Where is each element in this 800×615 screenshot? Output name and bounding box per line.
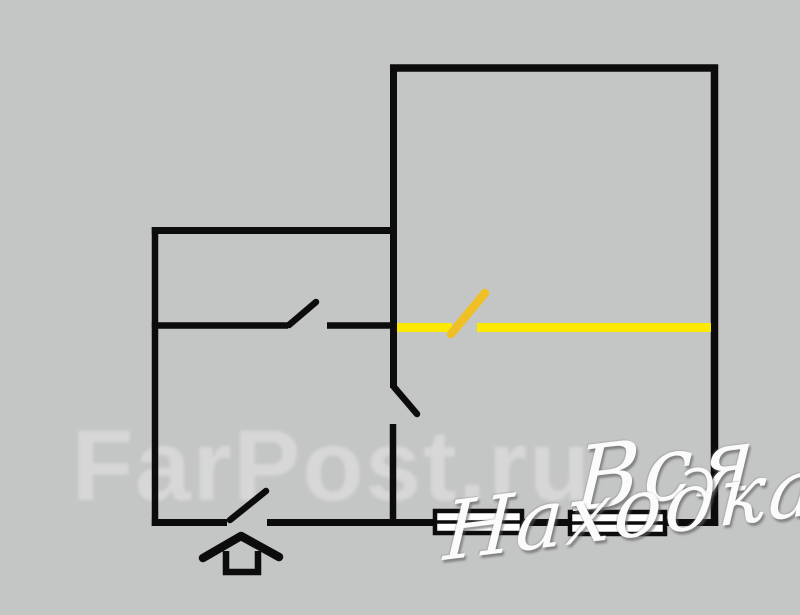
entrance-door-leaf [230,491,266,520]
small-room-door-leaf [289,302,316,325]
entrance-arrow-stem [226,551,258,572]
kitchen-door-leaf [394,387,417,414]
floor-plan-canvas: FarPost.ru Вся Находка [0,0,800,615]
floor-plan-drawing [0,0,800,615]
entrance-arrow-head [203,536,279,558]
